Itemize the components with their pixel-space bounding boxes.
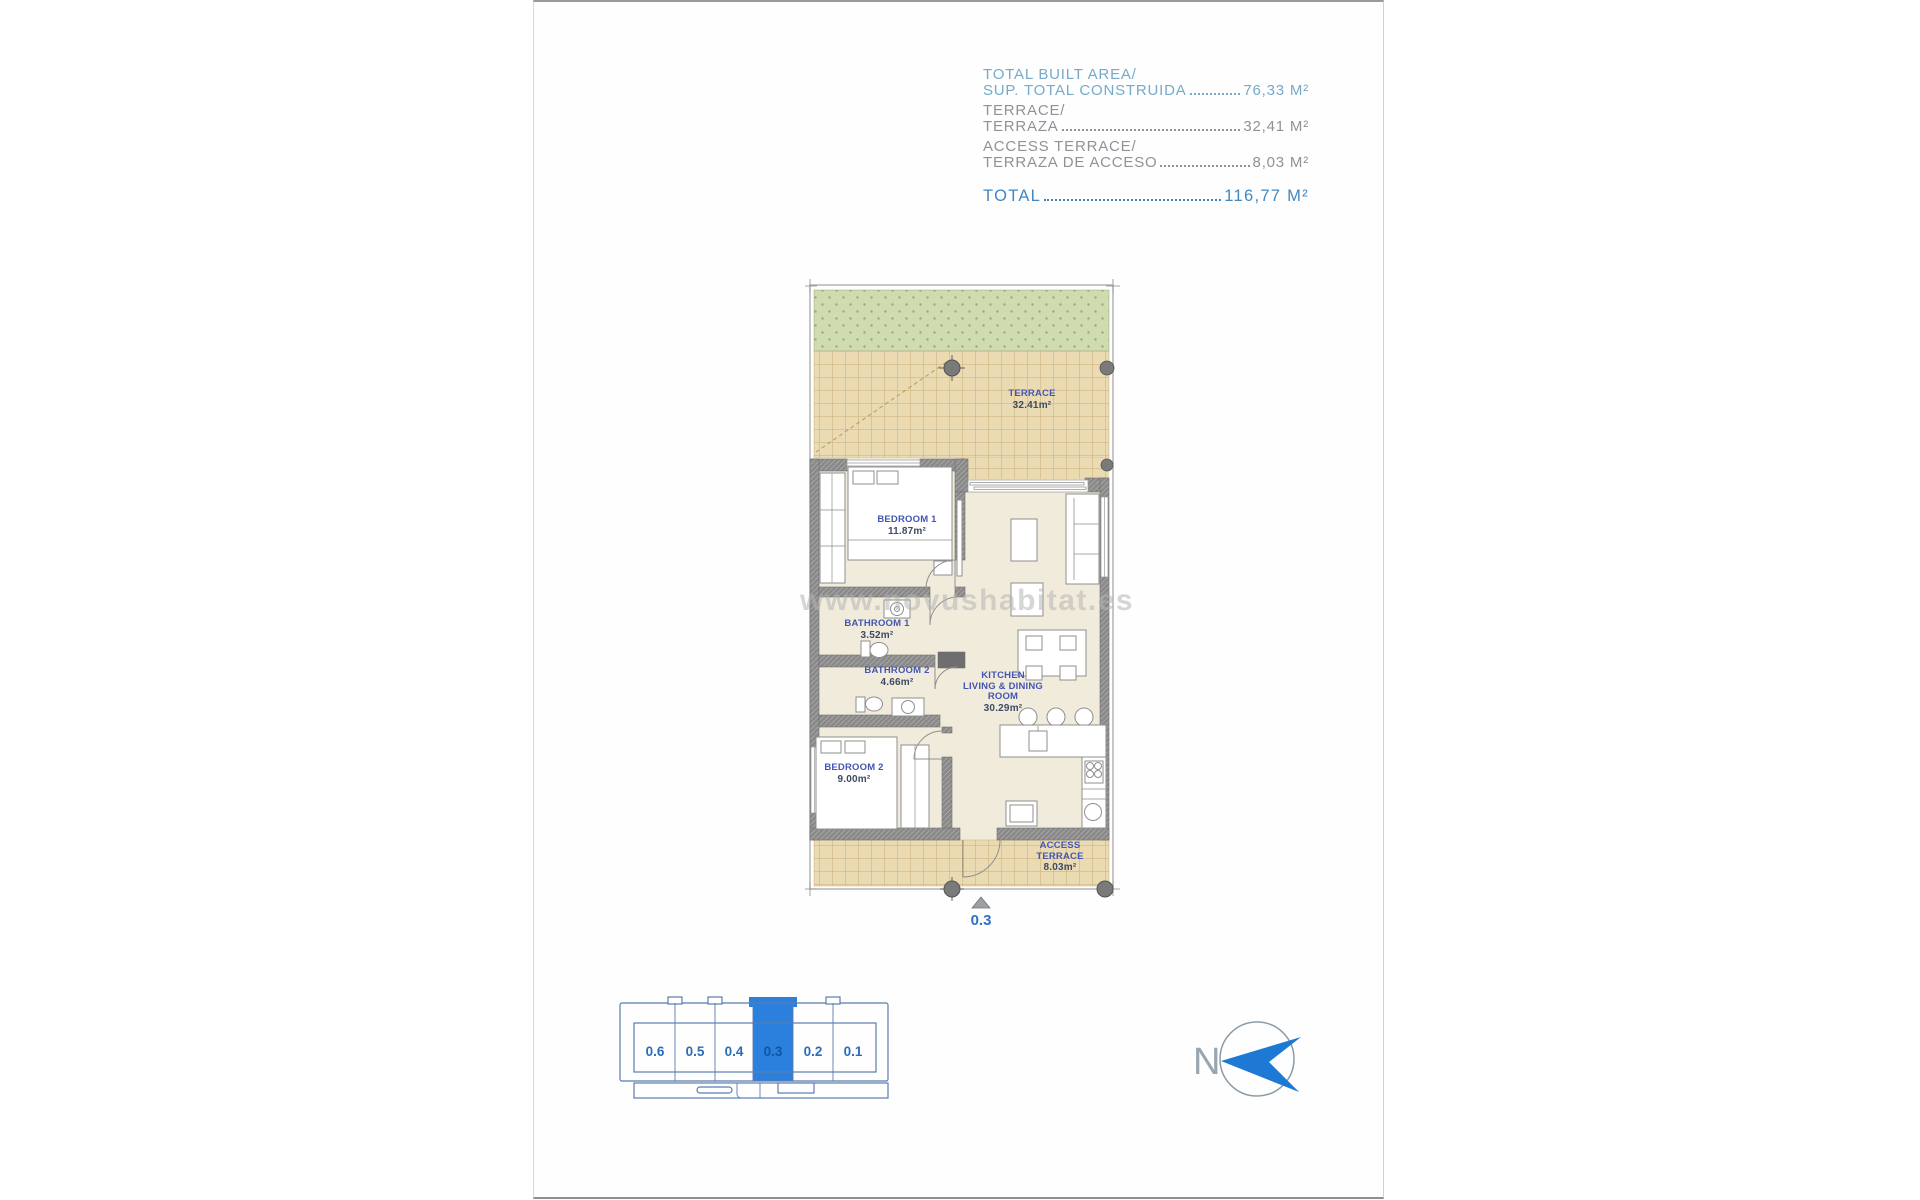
room-area: 30.29m²: [933, 704, 1073, 715]
room-area: 32.41m²: [962, 401, 1102, 412]
fridge: [1006, 801, 1037, 826]
room-name: BATHROOM 1: [807, 619, 947, 630]
sofa: [1066, 494, 1099, 584]
room-label-access-terrace: ACCESS TERRACE 8.03m²: [990, 841, 1130, 874]
summary-row-built-area: TOTAL BUILT AREA/ SUP. TOTAL CONSTRUIDA …: [983, 67, 1309, 99]
room-name: ROOM: [933, 692, 1073, 703]
building-locator: 0.6 0.5 0.4 0.3 0.2 0.1: [610, 995, 900, 1107]
room-name: TERRACE: [962, 389, 1102, 400]
locator-unit-0-1: 0.1: [844, 1044, 863, 1059]
room-area: 9.00m²: [784, 775, 924, 786]
room-name: TERRACE: [990, 852, 1130, 863]
room-name: BEDROOM 1: [837, 515, 977, 526]
room-label-bedroom1: BEDROOM 1 11.87m²: [837, 515, 977, 537]
room-area: 8.03m²: [990, 863, 1130, 874]
room-label-bathroom1: BATHROOM 1 3.52m²: [807, 619, 947, 641]
summary-label-es: TERRAZA: [983, 119, 1059, 135]
summary-total-row: TOTAL 116,77 M²: [983, 187, 1309, 206]
room-name: KITCHEN: [933, 671, 1073, 682]
terrace-tiles-lower: [960, 458, 1109, 479]
summary-label-es: SUP. TOTAL CONSTRUIDA: [983, 83, 1187, 99]
summary-row-terrace: TERRACE/ TERRAZA 32,41 M²: [983, 103, 1309, 135]
summary-value: 76,33 M²: [1243, 83, 1309, 99]
summary-value: 8,03 M²: [1253, 155, 1309, 171]
locator-unit-0-4: 0.4: [725, 1044, 744, 1059]
dotted-leader: [1160, 164, 1249, 167]
compass: N: [1185, 1008, 1310, 1113]
locator-unit-0-2: 0.2: [804, 1044, 823, 1059]
area-summary: TOTAL BUILT AREA/ SUP. TOTAL CONSTRUIDA …: [983, 67, 1309, 206]
dotted-leader: [1044, 198, 1221, 201]
summary-label-en: TERRACE/: [983, 103, 1309, 119]
selected-unit-highlight: [749, 997, 797, 1081]
room-label-terrace: TERRACE 32.41m²: [962, 389, 1102, 411]
coffee-table: [1011, 519, 1037, 561]
summary-label-en: TOTAL BUILT AREA/: [983, 67, 1309, 83]
kitchen-sink: [1085, 804, 1102, 821]
locator-unit-0-5: 0.5: [686, 1044, 705, 1059]
floorplan-drawing: 0.3: [805, 278, 1120, 930]
room-name: ACCESS: [990, 841, 1130, 852]
drain-symbol: [1100, 361, 1114, 375]
dotted-leader: [1190, 92, 1241, 95]
garden-area: [814, 290, 1109, 351]
summary-total-label: TOTAL: [983, 187, 1041, 206]
room-area: 3.52m²: [807, 631, 947, 642]
compass-arrow-icon: [1221, 1037, 1301, 1092]
summary-total-value: 116,77 M²: [1224, 187, 1309, 206]
tv-unit: [957, 500, 962, 576]
entrance-triangle-marker: [972, 897, 990, 908]
room-area: 11.87m²: [837, 527, 977, 538]
room-name: BEDROOM 2: [784, 763, 924, 774]
summary-label-es: TERRAZA DE ACCESO: [983, 155, 1157, 171]
room-label-kitchen: KITCHEN LIVING & DINING ROOM 30.29m²: [933, 671, 1073, 714]
locator-unit-0-3-selected: 0.3: [764, 1044, 783, 1059]
summary-value: 32,41 M²: [1243, 119, 1309, 135]
kitchen-counter: [1082, 757, 1106, 828]
dotted-leader: [1062, 128, 1241, 131]
room-label-bedroom2: BEDROOM 2 9.00m²: [784, 763, 924, 785]
summary-row-access-terrace: ACCESS TERRACE/ TERRAZA DE ACCESO 8,03 M…: [983, 139, 1309, 171]
compass-north-label: N: [1193, 1041, 1220, 1083]
unit-number-label: 0.3: [971, 912, 992, 929]
summary-label-en: ACCESS TERRACE/: [983, 139, 1309, 155]
wardrobe-2: [901, 745, 929, 828]
drain-symbol: [1101, 459, 1113, 471]
side-table: [1011, 583, 1043, 616]
locator-unit-0-6: 0.6: [646, 1044, 665, 1059]
